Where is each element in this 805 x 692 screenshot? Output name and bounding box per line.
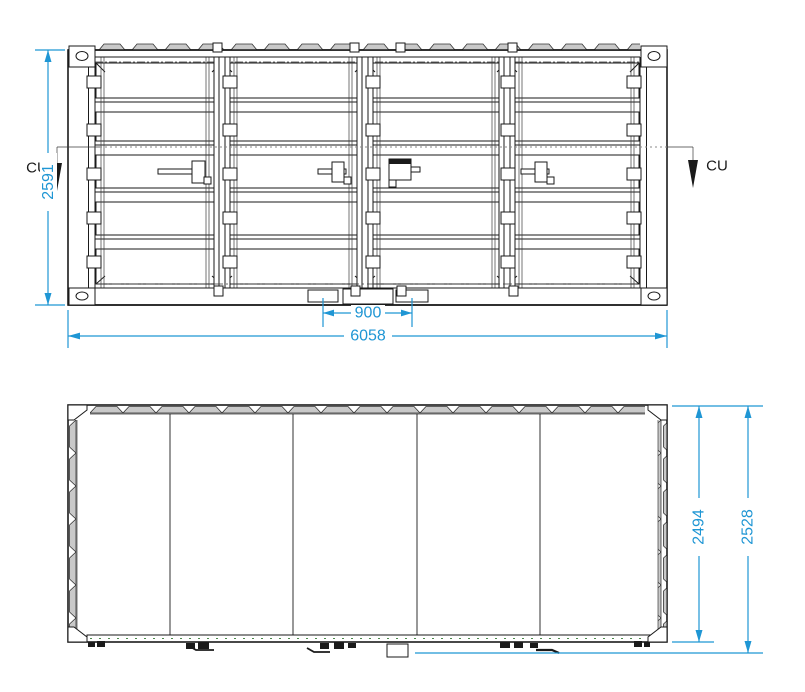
plan-outline: [68, 405, 667, 642]
corner-castings-plan-view: [68, 405, 667, 642]
dimension-overall-width-label: 2528: [740, 509, 757, 545]
plan-door-hardware: [88, 641, 650, 657]
roof-panel-divisions: [170, 414, 540, 635]
dimension-pocket-spacing-label: 900: [355, 305, 382, 322]
roof-corrugation-bands: [69, 406, 667, 631]
drawing-svg: CU CU 2591 900: [0, 0, 805, 692]
technical-drawing-canvas: CU CU 2591 900: [0, 0, 805, 692]
cut-marker-right: CU: [688, 147, 728, 188]
dimension-height: 2591: [35, 50, 65, 305]
plan-door-side-edge: [87, 635, 650, 642]
dimension-height-label: 2591: [40, 164, 57, 200]
side-elevation-view: CU CU 2591 900: [26, 43, 728, 348]
dimension-overall-length-label: 6058: [350, 328, 386, 345]
dimension-overall-width: 2528: [415, 406, 763, 653]
door-division-posts: [214, 57, 515, 288]
plan-lock-box: [387, 644, 408, 657]
cut-label-right: CU: [706, 158, 728, 175]
dimension-body-width-label: 2494: [691, 509, 708, 545]
plan-view: 2494 2528: [68, 405, 763, 657]
cut-arrow-right-icon: [688, 160, 698, 188]
top-rail: [68, 43, 667, 57]
